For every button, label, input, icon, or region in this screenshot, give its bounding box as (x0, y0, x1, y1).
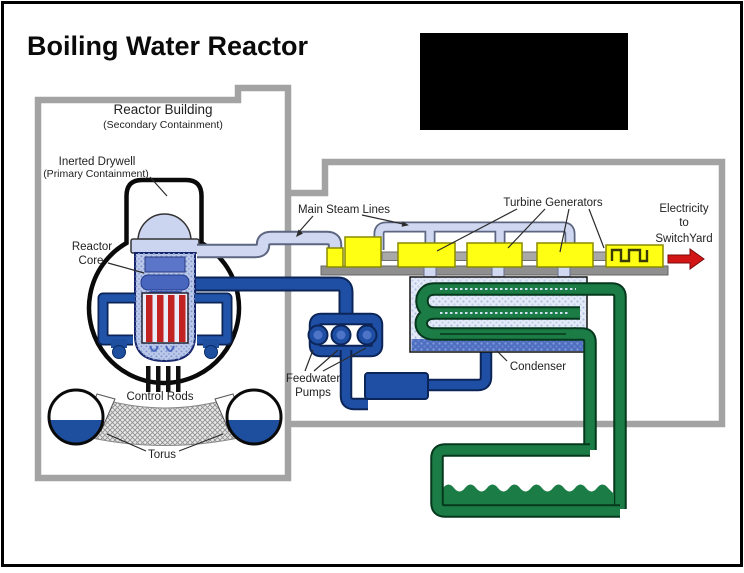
page-title: Boiling Water Reactor (27, 31, 309, 61)
shaft (455, 252, 467, 261)
lp-turbine-2 (467, 243, 522, 267)
label-secondary-containment: (Secondary Containment) (103, 119, 223, 131)
label-primary-containment: (Primary Containment) (43, 168, 149, 180)
label-torus: Torus (148, 449, 176, 461)
label-electricity-1: Electricity (659, 203, 708, 215)
fuel-rod (179, 295, 186, 342)
condensate-piping (346, 350, 486, 404)
reactor-vessel (131, 214, 199, 361)
reactor-core-bars (142, 293, 188, 343)
hp-turbine-inlet (327, 248, 343, 267)
hp-turbine (345, 237, 381, 267)
steam-dryer (141, 275, 189, 290)
reservoir-water (443, 485, 614, 507)
fuel-rod (146, 295, 153, 342)
slide: Boiling Water Reactor (0, 0, 744, 573)
feedwater-pump (358, 326, 377, 345)
reservoir-tank (437, 450, 620, 511)
recirc-pump (205, 346, 218, 359)
black-placeholder-box (420, 33, 628, 130)
main-steam-line (197, 238, 335, 253)
feedwater-pump (309, 326, 328, 345)
label-inerted-drywell: Inerted Drywell (59, 156, 136, 168)
label-turbine-generators: Turbine Generators (503, 197, 603, 209)
feedwater-pump (332, 326, 351, 345)
generator (606, 245, 663, 267)
label-feedwater-1: Feedwater (286, 373, 341, 385)
label-reactor-core-1: Reactor (72, 241, 112, 253)
label-electricity-2: to (679, 217, 689, 229)
hotwell-tank (365, 373, 428, 399)
label-main-steam-lines: Main Steam Lines (298, 204, 390, 216)
lp-turbine-3 (537, 243, 593, 267)
pointer-steam-left (298, 216, 313, 233)
recirc-pump (113, 346, 126, 359)
shaft (522, 252, 537, 261)
steam-separator (145, 257, 185, 272)
fuel-rod (168, 295, 175, 342)
label-reactor-core-2: Core (79, 255, 104, 267)
label-control-rods: Control Rods (126, 391, 193, 403)
vessel-flange (131, 239, 199, 253)
label-condenser: Condenser (510, 361, 566, 373)
fuel-rod (157, 295, 164, 342)
bwr-diagram: Boiling Water Reactor (0, 0, 744, 573)
feedwater-pump-loop (309, 319, 378, 351)
label-reactor-building: Reactor Building (113, 102, 212, 117)
label-electricity-3: SwitchYard (655, 233, 712, 245)
shaft (382, 252, 398, 261)
shaft (593, 252, 606, 261)
electricity-arrow-icon (668, 249, 704, 269)
label-feedwater-2: Pumps (295, 387, 331, 399)
